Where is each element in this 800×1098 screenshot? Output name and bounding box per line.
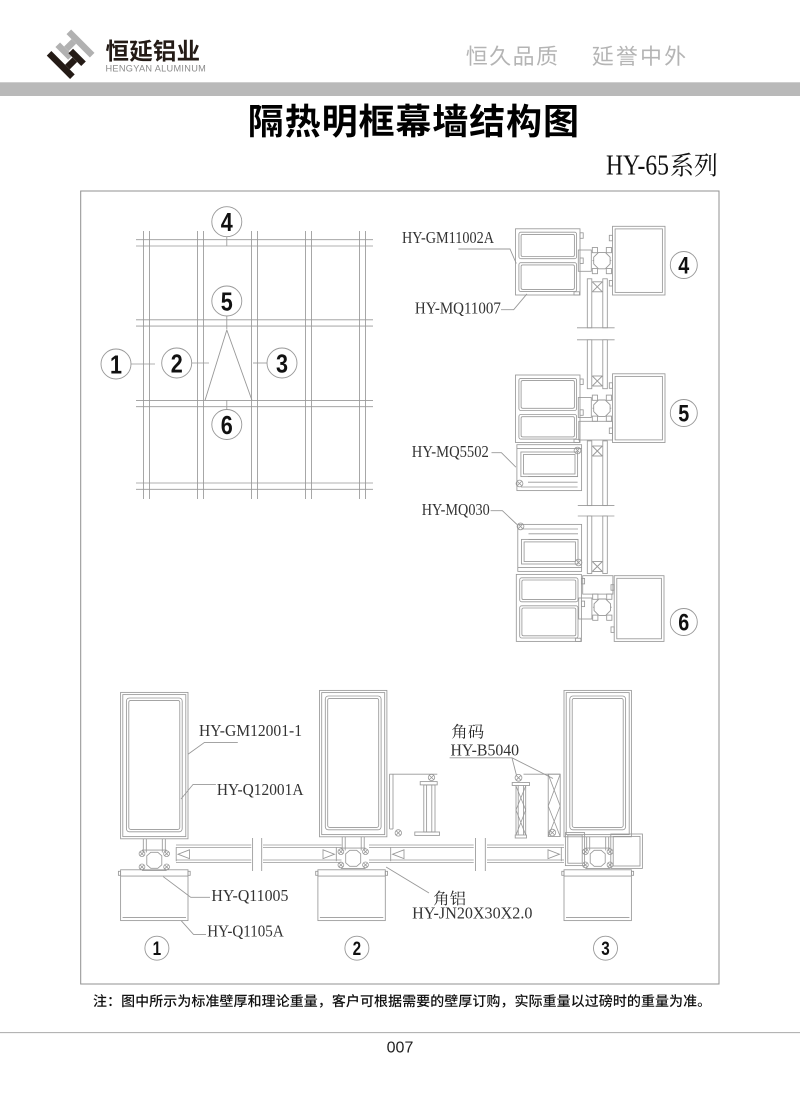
svg-text:1: 1 xyxy=(153,939,162,960)
svg-text:6: 6 xyxy=(221,410,233,440)
svg-text:6: 6 xyxy=(678,610,689,637)
svg-text:HY-Q12001A: HY-Q12001A xyxy=(217,780,304,799)
svg-text:HY-Q11005: HY-Q11005 xyxy=(211,886,288,905)
svg-text:4: 4 xyxy=(678,253,690,280)
svg-text:1: 1 xyxy=(110,349,122,379)
svg-text:HY-65: HY-65 xyxy=(606,151,669,182)
svg-text:3: 3 xyxy=(276,348,288,378)
svg-text:HY-GM11002A: HY-GM11002A xyxy=(402,228,495,247)
svg-text:HY-MQ11007: HY-MQ11007 xyxy=(415,299,501,318)
svg-text:HY-JN20X30X2.0: HY-JN20X30X2.0 xyxy=(412,904,532,923)
svg-text:HY-MQ5502: HY-MQ5502 xyxy=(412,442,489,461)
svg-text:4: 4 xyxy=(221,207,233,237)
svg-text:HY-B5040: HY-B5040 xyxy=(451,740,520,759)
svg-text:HY-MQ030: HY-MQ030 xyxy=(422,500,490,519)
svg-text:3: 3 xyxy=(601,939,610,960)
svg-text:2: 2 xyxy=(353,939,362,960)
svg-text:007: 007 xyxy=(387,1040,414,1057)
svg-text:HY-Q1105A: HY-Q1105A xyxy=(207,921,284,940)
svg-text:2: 2 xyxy=(171,348,183,378)
svg-text:HY-GM12001-1: HY-GM12001-1 xyxy=(199,721,302,740)
svg-text:HENGYAN ALUMINUM: HENGYAN ALUMINUM xyxy=(106,63,207,73)
svg-text:5: 5 xyxy=(221,286,233,316)
svg-text:5: 5 xyxy=(678,401,689,428)
